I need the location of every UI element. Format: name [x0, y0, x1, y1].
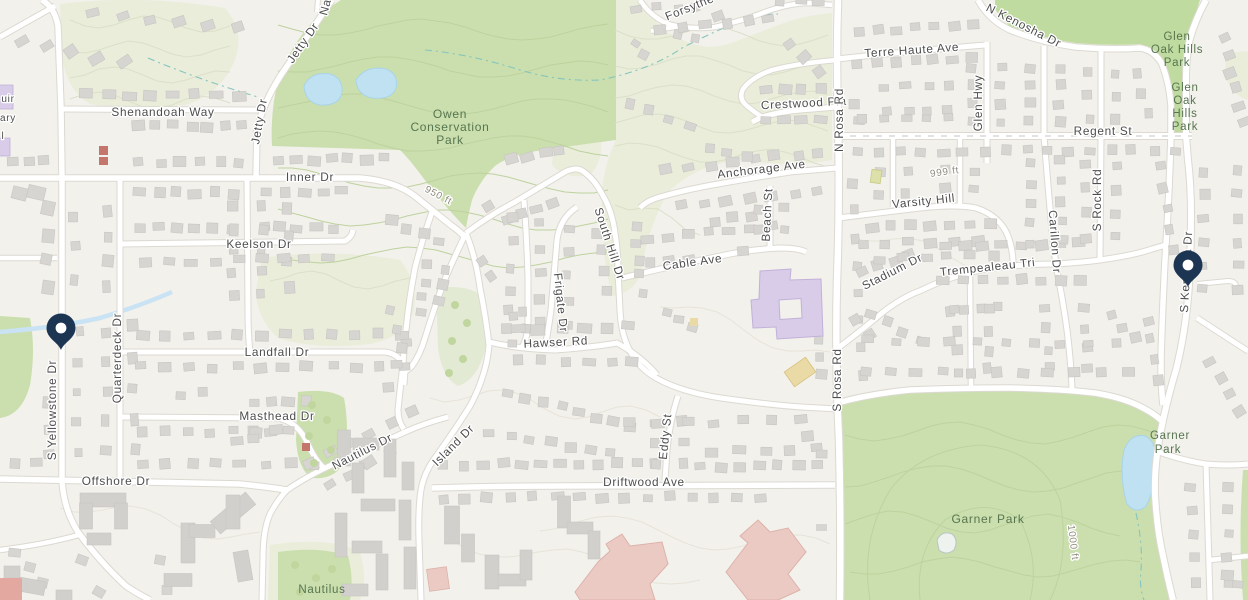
svg-text:S Rosa Rd: S Rosa Rd: [830, 348, 844, 411]
svg-text:Inner Dr: Inner Dr: [286, 170, 334, 184]
svg-text:Oak Hills: Oak Hills: [1151, 44, 1203, 56]
svg-text:Garner Park: Garner Park: [951, 512, 1024, 526]
svg-text:ary: ary: [0, 113, 16, 124]
svg-text:Owen: Owen: [433, 107, 467, 121]
svg-text:Masthead Dr: Masthead Dr: [239, 409, 314, 423]
svg-text:S Yellowstone Dr: S Yellowstone Dr: [45, 360, 59, 460]
svg-text:Conservation: Conservation: [410, 120, 489, 134]
svg-text:Regent St: Regent St: [1074, 124, 1133, 138]
svg-text:Glen: Glen: [1163, 31, 1190, 43]
svg-text:N Rosa Rd: N Rosa Rd: [832, 88, 846, 152]
svg-text:l: l: [2, 131, 5, 142]
svg-text:Keelson Dr: Keelson Dr: [226, 237, 291, 251]
svg-text:Hills: Hills: [1172, 108, 1197, 120]
svg-text:Quarterdeck Dr: Quarterdeck Dr: [110, 313, 124, 403]
svg-text:Garner: Garner: [1150, 430, 1190, 442]
svg-text:Beach St: Beach St: [759, 188, 776, 242]
svg-text:Park: Park: [1164, 57, 1190, 69]
svg-text:Park: Park: [1155, 444, 1181, 456]
svg-text:Park: Park: [1172, 121, 1198, 133]
svg-text:uir: uir: [1, 94, 14, 105]
svg-text:Offshore Dr: Offshore Dr: [82, 474, 150, 488]
svg-text:Nautilus: Nautilus: [298, 584, 345, 596]
svg-text:Driftwood Ave: Driftwood Ave: [603, 475, 685, 489]
svg-text:S Rock Rd: S Rock Rd: [1090, 169, 1104, 232]
svg-text:Park: Park: [436, 133, 464, 147]
svg-text:Oak: Oak: [1173, 95, 1196, 107]
svg-text:Glen Hwy: Glen Hwy: [971, 75, 985, 132]
svg-text:Landfall Dr: Landfall Dr: [245, 345, 310, 359]
svg-text:Glen: Glen: [1171, 82, 1198, 94]
svg-text:Shenandoah Way: Shenandoah Way: [111, 105, 214, 119]
